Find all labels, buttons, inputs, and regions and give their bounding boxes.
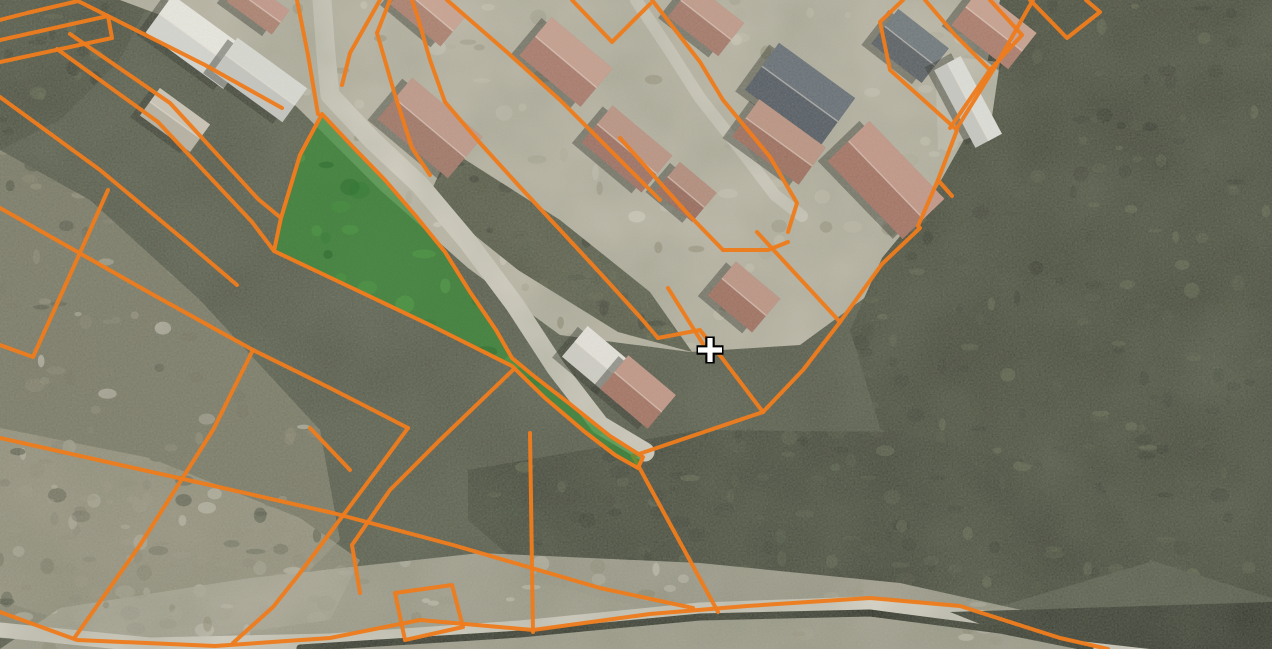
photo-texture-overlay: [0, 0, 1272, 649]
map-viewport[interactable]: [0, 0, 1272, 649]
aerial-map-svg[interactable]: [0, 0, 1272, 649]
